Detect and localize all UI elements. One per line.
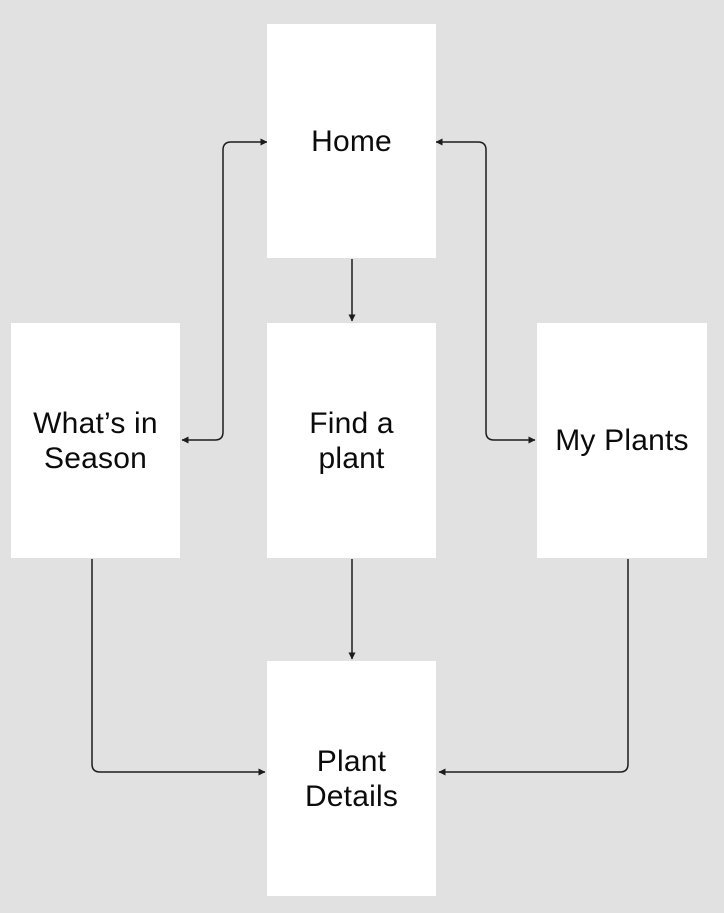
node-find-a-plant: Find a plant: [267, 323, 436, 558]
node-my-plants: My Plants: [537, 323, 707, 558]
node-home: Home: [267, 24, 436, 258]
node-plant-details-label: Plant Details: [305, 744, 398, 814]
node-home-label: Home: [311, 124, 392, 159]
edge-home-to-whats-in-season: [182, 142, 267, 440]
edge-home-to-my-plants: [436, 142, 535, 440]
node-whats-in-season-label: What’s in Season: [33, 406, 158, 476]
node-find-a-plant-label: Find a plant: [309, 406, 394, 476]
node-my-plants-label: My Plants: [555, 423, 689, 458]
edge-whats-in-season-to-plant-details: [92, 559, 265, 772]
node-whats-in-season: What’s in Season: [11, 323, 180, 558]
edge-my-plants-to-plant-details: [439, 559, 628, 772]
node-plant-details: Plant Details: [267, 661, 436, 896]
flow-diagram: Home What’s in Season Find a plant My Pl…: [0, 0, 724, 913]
